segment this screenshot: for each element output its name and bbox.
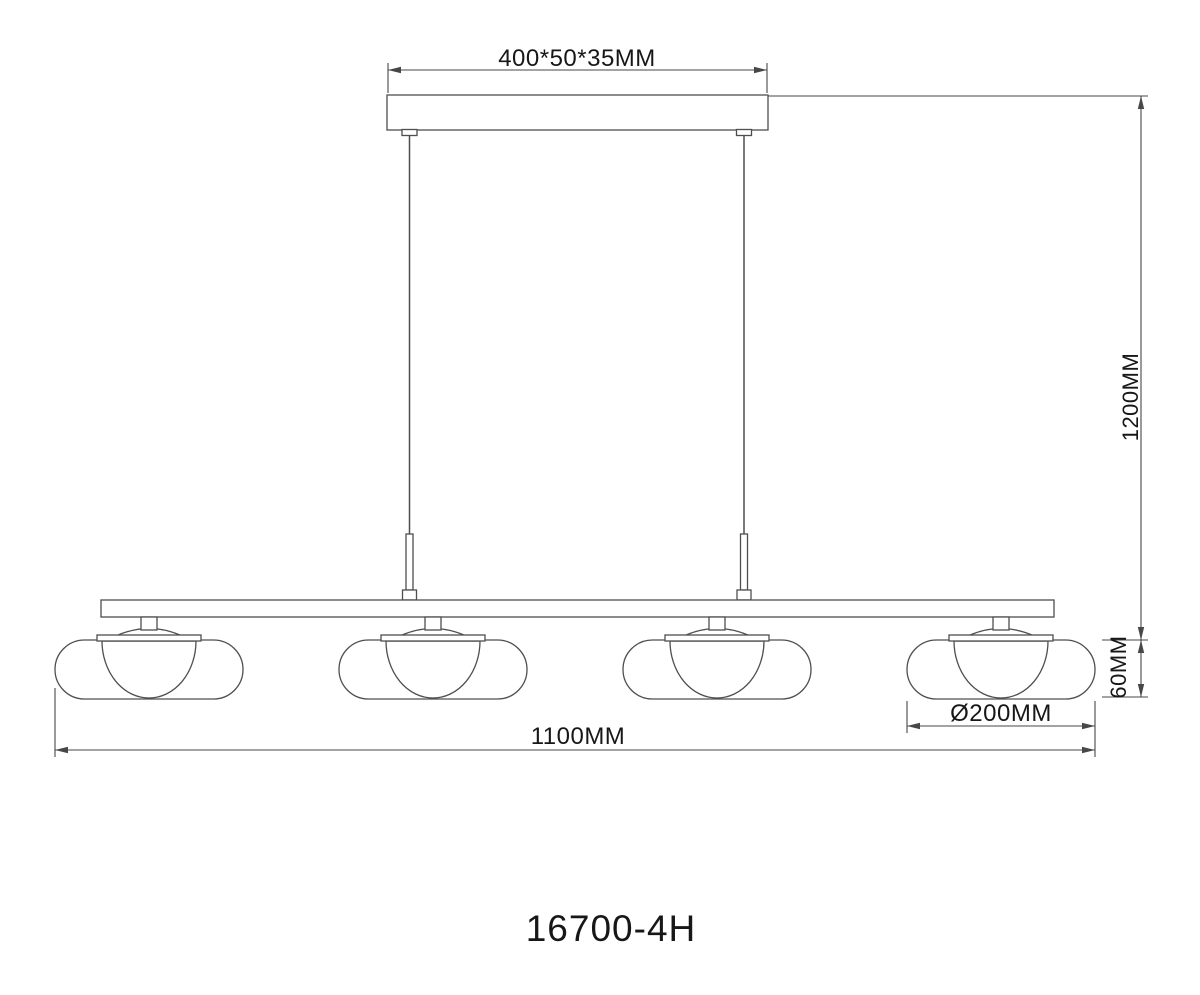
canopy-size-label: 400*50*35MM	[498, 45, 656, 72]
dimension-shade-diameter: Ø200MM	[907, 700, 1095, 757]
pendant-light-technical-drawing: 400*50*35MM 1200MM 60MM Ø200MM	[0, 0, 1200, 995]
dimension-canopy-size: 400*50*35MM	[388, 45, 767, 93]
fixture-bar	[101, 600, 1054, 617]
shade-diameter-label: Ø200MM	[950, 700, 1052, 727]
suspension-drop-label: 1200MM	[1118, 353, 1143, 442]
overall-length-label: 1100MM	[531, 723, 626, 750]
lamp-shade-3	[623, 617, 811, 699]
lamp-shade-1	[55, 617, 243, 699]
shade-height-label: 60MM	[1106, 635, 1131, 698]
lamp-shade-2	[339, 617, 527, 699]
model-number-label: 16700-4H	[526, 908, 697, 949]
ceiling-canopy	[387, 95, 768, 130]
suspension-cable-right	[737, 130, 752, 601]
drawing-canvas: 400*50*35MM 1200MM 60MM Ø200MM	[0, 0, 1200, 995]
lamp-shade-4	[907, 617, 1095, 699]
suspension-cable-left	[402, 130, 417, 601]
